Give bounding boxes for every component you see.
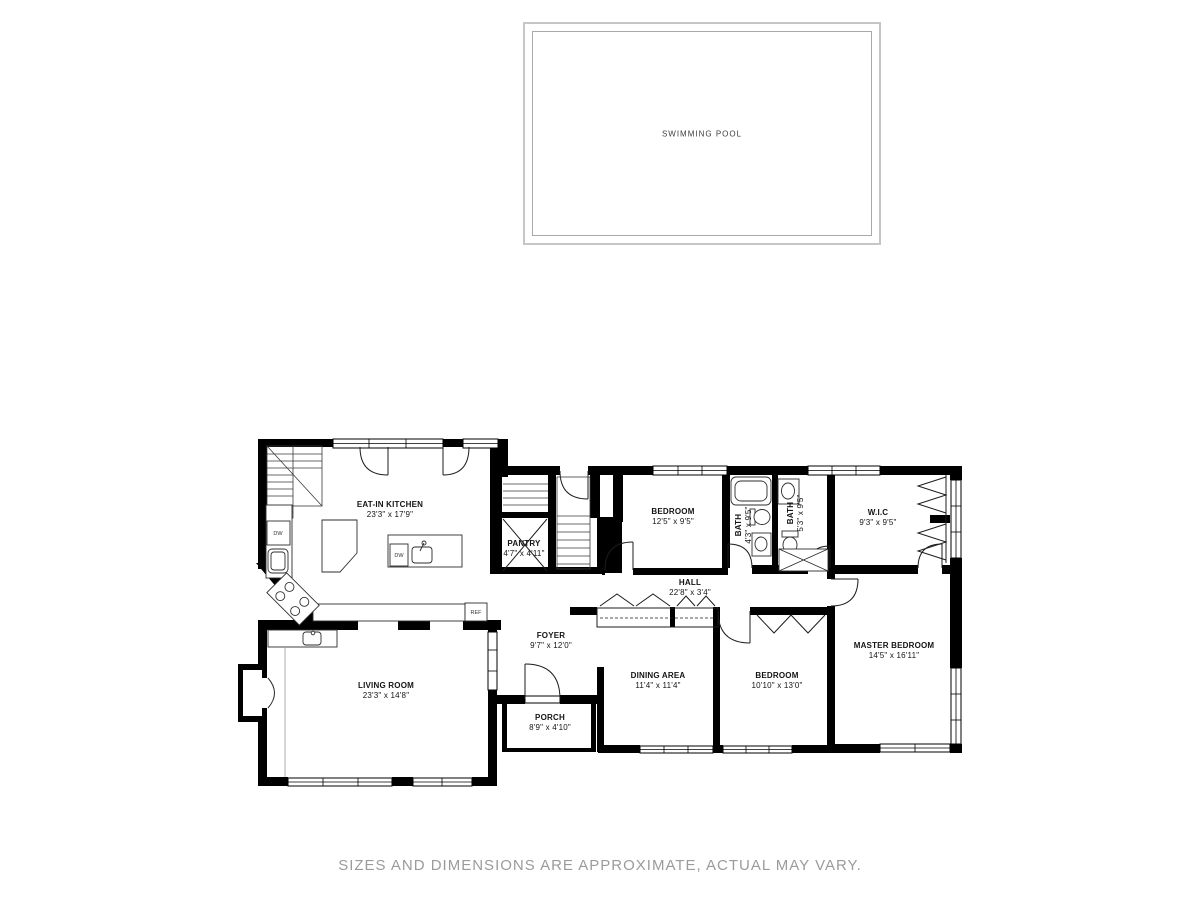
- dishwasher-island-label: DW: [394, 553, 404, 559]
- room-label-wic: W.I.C 9'3" x 9'5": [859, 508, 896, 528]
- room-label-foyer: FOYER 9'7" x 12'0": [530, 631, 572, 651]
- room-label-bedroom: BEDROOM 12'5" x 9'5": [651, 507, 694, 527]
- disclaimer-text: SIZES AND DIMENSIONS ARE APPROXIMATE, AC…: [0, 857, 1200, 874]
- fireplace: [238, 664, 275, 722]
- refrigerator-label: REF: [471, 610, 483, 616]
- floor-plan-drawing: DW DW REF: [0, 0, 1200, 900]
- room-label-dining-area: DINING AREA 11'4" x 11'4": [631, 671, 686, 691]
- room-label-bedroom-2: BEDROOM 10'10" x 13'0": [751, 671, 802, 691]
- room-label-master-bedroom: MASTER BEDROOM 14'5" x 16'11": [854, 641, 935, 661]
- room-label-bath-2: BATH 5'3" x 9'5": [786, 494, 806, 531]
- room-label-pantry: PANTRY 4'7" x 4'11": [503, 539, 544, 559]
- dishwasher-label: DW: [273, 531, 283, 537]
- floor-plan-page: SWIMMING POOL: [0, 0, 1200, 900]
- room-label-eat-in-kitchen: EAT-IN KITCHEN 23'3" x 17'9": [357, 500, 423, 520]
- room-label-hall: HALL 22'8" x 3'4": [669, 578, 711, 598]
- room-label-bath-1: BATH 4'3" x 9'5": [734, 506, 754, 543]
- room-label-porch: PORCH 8'9" x 4'10": [529, 713, 571, 733]
- room-label-living-room: LIVING ROOM 23'3" x 14'8": [358, 681, 414, 701]
